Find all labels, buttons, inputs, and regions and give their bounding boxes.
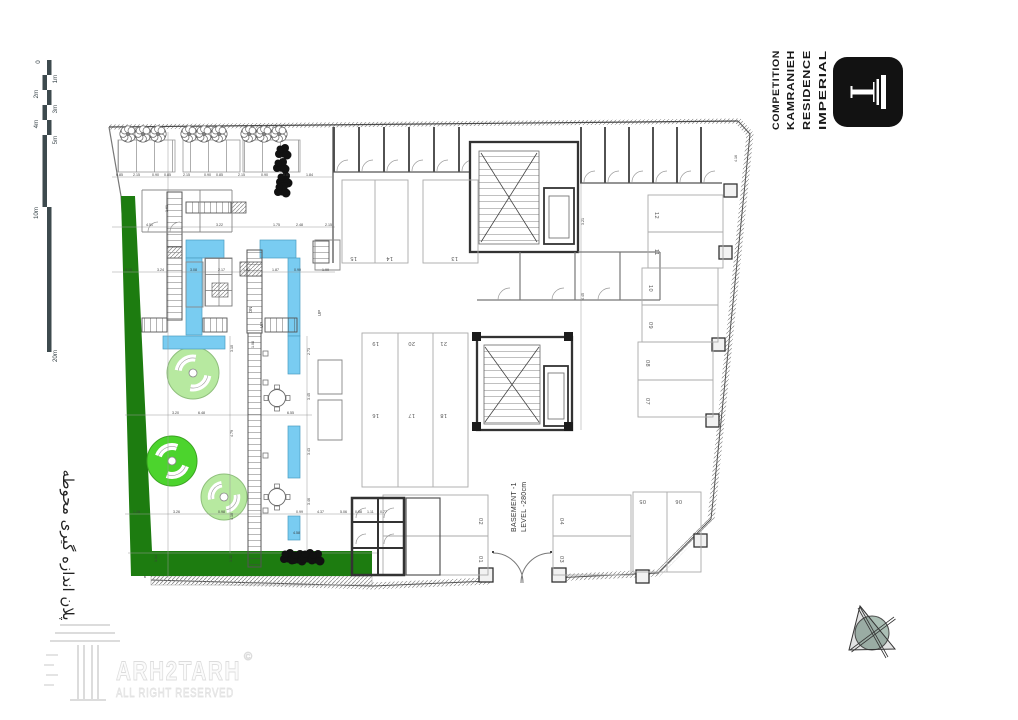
central-stair — [247, 250, 262, 333]
trellis — [186, 202, 231, 213]
watermark: ARH2TARH © ALL RIGHT RESERVED — [44, 625, 252, 700]
svg-text:4.10: 4.10 — [230, 513, 234, 520]
svg-text:RESIDENCE: RESIDENCE — [801, 50, 813, 130]
svg-text:3.43: 3.43 — [307, 448, 311, 455]
trees — [120, 126, 287, 142]
svg-text:04: 04 — [558, 518, 564, 525]
north-arrow-icon — [849, 606, 896, 658]
scale-bar: 01m2m3m4m5m10m20m — [33, 60, 59, 362]
svg-text:0.90: 0.90 — [294, 268, 301, 272]
entrance-doors — [493, 551, 551, 583]
svg-text:2.15: 2.15 — [133, 173, 140, 177]
level-label: BASEMENT -1 LEVEL -280cm — [511, 482, 528, 532]
svg-text:3m: 3m — [52, 105, 59, 114]
svg-text:20: 20 — [408, 340, 415, 346]
svg-text:07: 07 — [644, 398, 650, 405]
svg-text:0.80: 0.80 — [283, 173, 290, 177]
svg-text:4.37: 4.37 — [317, 510, 324, 514]
svg-text:0.90: 0.90 — [152, 173, 159, 177]
title-block: COMPETITIONKAMRANIEHRESIDENCEIMPERIAL — [771, 50, 903, 130]
svg-text:20m: 20m — [52, 350, 59, 362]
sidewalk — [151, 576, 372, 585]
svg-text:01: 01 — [477, 556, 483, 563]
svg-text:09: 09 — [647, 322, 653, 329]
svg-text:COMPETITION: COMPETITION — [771, 50, 782, 130]
svg-text:02: 02 — [477, 518, 483, 525]
svg-text:1m: 1m — [52, 75, 59, 84]
svg-text:13: 13 — [451, 255, 458, 261]
svg-text:0.98: 0.98 — [218, 510, 225, 514]
planters — [263, 351, 268, 513]
svg-text:6.48: 6.48 — [198, 411, 205, 415]
svg-text:3.08: 3.08 — [190, 268, 197, 272]
watermark-copyright: © — [244, 651, 252, 663]
svg-text:2.15: 2.15 — [183, 173, 190, 177]
svg-text:15: 15 — [350, 255, 357, 261]
svg-text:05: 05 — [639, 498, 646, 504]
svg-text:12: 12 — [653, 212, 659, 219]
watermark-logo — [44, 625, 120, 700]
svg-text:06: 06 — [675, 498, 682, 504]
svg-text:4.45: 4.45 — [581, 293, 585, 300]
svg-text:4.51: 4.51 — [146, 223, 153, 227]
svg-text:21: 21 — [440, 340, 447, 346]
svg-text:0: 0 — [35, 60, 42, 64]
svg-text:2.73: 2.73 — [307, 348, 311, 355]
svg-text:3.45: 3.45 — [307, 393, 311, 400]
svg-text:3.46: 3.46 — [307, 498, 311, 505]
svg-text:6.55: 6.55 — [287, 411, 294, 415]
svg-text:0.90: 0.90 — [204, 173, 211, 177]
svg-text:3.61: 3.61 — [165, 205, 169, 212]
svg-text:4m: 4m — [33, 120, 40, 129]
svg-text:08: 08 — [644, 360, 650, 367]
svg-text:2m: 2m — [33, 90, 40, 99]
drawing-title-farsi: پلان اندازه گیری محوطه — [58, 469, 77, 620]
pergola-right — [203, 318, 227, 332]
svg-text:14: 14 — [386, 255, 393, 261]
level-line1: BASEMENT -1 — [511, 482, 518, 532]
svg-text:0.85: 0.85 — [116, 173, 123, 177]
svg-text:19: 19 — [372, 340, 379, 346]
svg-text:IMPERIAL: IMPERIAL — [817, 50, 829, 130]
mid-rooms — [477, 252, 660, 300]
svg-text:11: 11 — [653, 249, 659, 256]
svg-text:4.79: 4.79 — [230, 430, 234, 437]
svg-text:2.15: 2.15 — [238, 173, 245, 177]
svg-text:3.21: 3.21 — [581, 218, 585, 225]
svg-text:1.99: 1.99 — [322, 268, 329, 272]
courtyard-pergola — [248, 333, 261, 567]
svg-text:4.16: 4.16 — [734, 155, 738, 162]
stair-core-mid — [472, 332, 573, 431]
svg-text:3.26: 3.26 — [173, 510, 180, 514]
svg-text:UP: UP — [259, 322, 264, 328]
watermark-brand: ARH2TARH — [116, 656, 241, 686]
svg-text:10m: 10m — [33, 207, 40, 219]
watermark-tagline: ALL RIGHT RESERVED — [116, 685, 234, 700]
svg-text:1.02: 1.02 — [243, 268, 250, 272]
svg-text:5.15: 5.15 — [125, 268, 132, 272]
svg-text:0.77: 0.77 — [380, 510, 387, 514]
level-line2: LEVEL -280cm — [521, 482, 528, 532]
svg-text:17: 17 — [408, 412, 415, 418]
svg-text:18: 18 — [440, 412, 447, 418]
svg-text:1.08: 1.08 — [251, 341, 255, 348]
svg-text:3.10: 3.10 — [230, 345, 234, 352]
svg-text:UP: UP — [317, 310, 322, 316]
svg-text:5.06: 5.06 — [340, 510, 347, 514]
svg-text:3.20: 3.20 — [172, 411, 179, 415]
svg-text:10: 10 — [647, 285, 653, 292]
svg-text:3.24: 3.24 — [157, 268, 164, 272]
svg-text:1.28: 1.28 — [133, 510, 140, 514]
svg-text:1.84: 1.84 — [306, 173, 313, 177]
svg-text:0.88: 0.88 — [355, 510, 362, 514]
tables — [264, 385, 290, 510]
svg-text:3.22: 3.22 — [216, 223, 223, 227]
svg-text:1.11: 1.11 — [367, 510, 374, 514]
svg-text:16: 16 — [372, 412, 379, 418]
svg-text:DN: DN — [248, 307, 253, 313]
svg-text:03: 03 — [558, 556, 564, 563]
svg-text:1.87: 1.87 — [272, 268, 279, 272]
svg-text:0.90: 0.90 — [261, 173, 268, 177]
boundary-wall-line — [151, 121, 750, 586]
svg-text:KAMRANIEH: KAMRANIEH — [785, 50, 797, 130]
pergola-left — [142, 318, 167, 332]
stair-core-top — [470, 142, 578, 252]
floorplan-drawing: 0102030405060708091011121314151617181920… — [0, 0, 1018, 720]
svg-text:5m: 5m — [52, 136, 59, 145]
svg-text:2.17: 2.17 — [218, 268, 225, 272]
page: 0102030405060708091011121314151617181920… — [0, 0, 1018, 720]
tree-row-stalls — [118, 140, 300, 172]
svg-text:4.58: 4.58 — [293, 531, 300, 535]
svg-text:2.48: 2.48 — [296, 223, 303, 227]
svg-text:0.85: 0.85 — [216, 173, 223, 177]
svg-text:1.32: 1.32 — [229, 555, 233, 562]
svg-text:0.85: 0.85 — [164, 173, 171, 177]
svg-text:2.15: 2.15 — [325, 223, 332, 227]
title-words: COMPETITIONKAMRANIEHRESIDENCEIMPERIAL — [771, 50, 829, 130]
boundary-wall-hatched — [151, 121, 750, 586]
service-grid — [205, 258, 232, 306]
svg-text:0.99: 0.99 — [296, 510, 303, 514]
svg-text:1.14: 1.14 — [154, 555, 158, 562]
svg-text:1.75: 1.75 — [273, 223, 280, 227]
